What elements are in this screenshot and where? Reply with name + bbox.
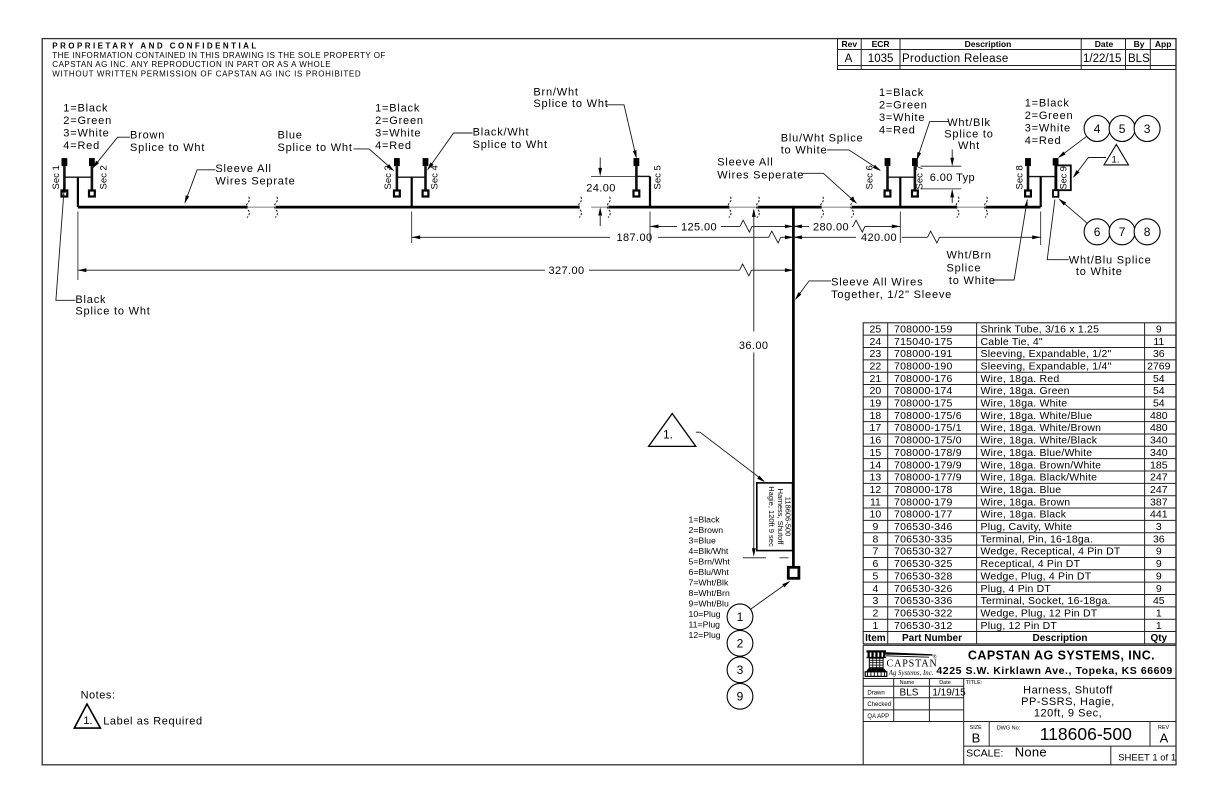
svg-text:9: 9 [737, 690, 744, 704]
svg-text:B: B [972, 730, 981, 745]
svg-text:Terminal, Pin, 16-18ga.: Terminal, Pin, 16-18ga. [981, 533, 1094, 545]
svg-text:2: 2 [872, 607, 878, 619]
svg-text:3=White: 3=White [879, 112, 925, 124]
svg-text:Date: Date [1095, 39, 1114, 49]
svg-text:Wire, 18ga. White/Blue: Wire, 18ga. White/Blue [981, 410, 1093, 422]
svg-text:11: 11 [870, 496, 881, 508]
svg-text:4225 S.W. Kirklawn Ave., Topek: 4225 S.W. Kirklawn Ave., Topeka, KS 6660… [936, 665, 1172, 677]
svg-text:7: 7 [872, 546, 878, 558]
svg-text:9: 9 [872, 521, 878, 533]
svg-text:247: 247 [1150, 484, 1168, 496]
svg-text:708000-178/9: 708000-178/9 [894, 447, 962, 459]
svg-text:708000-159: 708000-159 [894, 323, 953, 335]
svg-text:Sec 1: Sec 1 [51, 165, 62, 189]
svg-text:120ft, 9 Sec,: 120ft, 9 Sec, [1034, 707, 1102, 719]
svg-text:Wedge, Plug, 4 Pin DT: Wedge, Plug, 4 Pin DT [981, 570, 1092, 582]
svg-text:Blu/Wht Splice: Blu/Wht Splice [781, 132, 864, 144]
svg-text:CAPSTAN AG SYSTEMS, INC.: CAPSTAN AG SYSTEMS, INC. [968, 649, 1155, 663]
svg-text:708000-191: 708000-191 [894, 348, 953, 360]
svg-text:3=Blue: 3=Blue [689, 535, 716, 545]
svg-text:Splice to: Splice to [944, 129, 993, 141]
svg-text:2=Green: 2=Green [1025, 110, 1074, 122]
svg-text:9: 9 [1156, 558, 1162, 570]
svg-text:1/19/15: 1/19/15 [932, 687, 966, 698]
svg-text:340: 340 [1150, 447, 1168, 459]
svg-text:SCALE:: SCALE: [966, 748, 1003, 760]
svg-text:Sleeving, Expandable, 1/4": Sleeving, Expandable, 1/4" [981, 360, 1112, 372]
svg-text:Cable Tie, 4": Cable Tie, 4" [981, 336, 1043, 348]
svg-text:9: 9 [1156, 583, 1162, 595]
svg-text:706530-328: 706530-328 [894, 570, 953, 582]
svg-text:36: 36 [1153, 533, 1165, 545]
svg-text:ECR: ECR [872, 39, 890, 49]
svg-text:708000-175/0: 708000-175/0 [894, 435, 962, 447]
svg-text:4: 4 [872, 583, 878, 595]
svg-text:7=Wht/Blk: 7=Wht/Blk [689, 577, 729, 587]
svg-text:Wedge, Receptical, 4 Pin DT: Wedge, Receptical, 4 Pin DT [981, 546, 1121, 558]
svg-text:441: 441 [1150, 509, 1168, 521]
svg-text:CAPSTAN AG INC. ANY REPRODUCTI: CAPSTAN AG INC. ANY REPRODUCTION IN PART… [52, 60, 331, 69]
svg-text:Wht/Blu Splice: Wht/Blu Splice [1069, 255, 1152, 267]
svg-text:10=Plug: 10=Plug [689, 609, 721, 619]
svg-text:Date: Date [939, 680, 951, 686]
svg-text:12: 12 [870, 484, 882, 496]
svg-text:Together, 1/2" Sleeve: Together, 1/2" Sleeve [831, 289, 952, 301]
svg-text:Description: Description [1032, 633, 1087, 644]
svg-text:Wire, 18ga. Brown/White: Wire, 18ga. Brown/White [981, 459, 1102, 471]
svg-text:to White: to White [781, 145, 828, 157]
svg-text:Sec 4: Sec 4 [430, 165, 441, 189]
svg-text:App: App [1155, 39, 1172, 49]
svg-text:708000-176: 708000-176 [894, 373, 953, 385]
svg-text:Sleeve All Wires: Sleeve All Wires [831, 277, 923, 289]
svg-text:2769: 2769 [1147, 360, 1171, 372]
svg-text:20: 20 [870, 385, 882, 397]
svg-text:Sleeve All: Sleeve All [717, 157, 773, 169]
svg-text:23: 23 [870, 348, 882, 360]
svg-text:PP-SSRS, Hagie,: PP-SSRS, Hagie, [1021, 696, 1115, 708]
svg-text:1=Black: 1=Black [689, 514, 721, 524]
svg-text:17: 17 [870, 422, 882, 434]
svg-text:706530-336: 706530-336 [894, 595, 953, 607]
svg-text:1.: 1. [663, 428, 673, 442]
svg-text:1035: 1035 [868, 53, 894, 65]
svg-text:36: 36 [1153, 348, 1165, 360]
svg-text:480: 480 [1150, 410, 1168, 422]
svg-text:4=Red: 4=Red [375, 140, 412, 152]
svg-text:Wires Seperate: Wires Seperate [717, 169, 804, 181]
svg-text:Name: Name [900, 680, 915, 686]
svg-text:1/22/15: 1/22/15 [1083, 53, 1121, 65]
svg-text:708000-179: 708000-179 [894, 496, 953, 508]
svg-text:Brown: Brown [130, 130, 165, 142]
svg-text:1=Black: 1=Black [879, 87, 924, 99]
svg-text:4=Red: 4=Red [1025, 135, 1062, 147]
svg-text:45: 45 [1153, 595, 1165, 607]
svg-text:Brn/Wht: Brn/Wht [533, 87, 578, 99]
svg-text:A: A [1160, 730, 1169, 745]
svg-text:Sec 7: Sec 7 [914, 165, 925, 189]
svg-text:Wht: Wht [958, 140, 980, 152]
svg-text:480: 480 [1150, 422, 1168, 434]
svg-text:Checked: Checked [867, 702, 891, 708]
svg-text:Wht/Blk: Wht/Blk [947, 117, 991, 129]
svg-text:708000-175/1: 708000-175/1 [894, 422, 962, 434]
svg-text:to White: to White [949, 275, 996, 287]
svg-text:Part Number: Part Number [902, 633, 962, 644]
svg-text:706530-322: 706530-322 [894, 607, 953, 619]
svg-text:708000-175/6: 708000-175/6 [894, 410, 962, 422]
svg-text:715040-175: 715040-175 [894, 336, 953, 348]
svg-text:5: 5 [872, 570, 878, 582]
svg-text:16: 16 [870, 435, 882, 447]
svg-text:9: 9 [1156, 323, 1162, 335]
svg-text:Splice to Wht: Splice to Wht [473, 139, 548, 151]
svg-text:Wire, 18ga. Brown: Wire, 18ga. Brown [981, 496, 1071, 508]
svg-text:22: 22 [870, 360, 882, 372]
svg-text:Rev: Rev [842, 39, 858, 49]
svg-text:706530-325: 706530-325 [894, 558, 953, 570]
svg-text:3=White: 3=White [63, 127, 109, 139]
svg-text:Sleeving, Expandable, 1/2": Sleeving, Expandable, 1/2" [981, 348, 1112, 360]
svg-text:Notes:: Notes: [81, 689, 116, 701]
svg-text:2=Green: 2=Green [879, 100, 928, 112]
svg-text:Wire, 18ga. Red: Wire, 18ga. Red [981, 373, 1060, 385]
svg-text:12=Plug: 12=Plug [689, 630, 721, 640]
svg-text:By: By [1134, 39, 1145, 49]
svg-text:PROPRIETARY AND CONFIDENTIAL: PROPRIETARY AND CONFIDENTIAL [52, 42, 258, 51]
svg-text:Black: Black [75, 294, 106, 306]
svg-text:54: 54 [1153, 373, 1165, 385]
svg-text:340: 340 [1150, 435, 1168, 447]
svg-text:3: 3 [1156, 521, 1162, 533]
svg-text:Harness, Shutoff: Harness, Shutoff [1023, 684, 1113, 696]
svg-text:9: 9 [1156, 546, 1162, 558]
svg-text:706530-335: 706530-335 [894, 533, 953, 545]
svg-text:1=Black: 1=Black [63, 103, 108, 115]
svg-text:6: 6 [1094, 225, 1101, 239]
svg-text:THE INFORMATION CONTAINED IN T: THE INFORMATION CONTAINED IN THIS DRAWIN… [52, 51, 385, 60]
svg-text:QA APP: QA APP [867, 714, 889, 720]
svg-text:to White: to White [1076, 266, 1123, 278]
svg-text:1=Black: 1=Black [375, 103, 420, 115]
svg-text:Plug, 4 Pin DT: Plug, 4 Pin DT [981, 583, 1052, 595]
svg-text:9: 9 [1156, 570, 1162, 582]
svg-text:Description: Description [965, 39, 1012, 49]
svg-text:14: 14 [870, 459, 882, 471]
svg-text:Sleeve All: Sleeve All [215, 163, 271, 175]
svg-text:247: 247 [1150, 472, 1168, 484]
svg-text:19: 19 [870, 398, 882, 410]
svg-text:708000-177/9: 708000-177/9 [894, 472, 962, 484]
svg-text:6: 6 [872, 558, 878, 570]
svg-text:125.00: 125.00 [681, 221, 717, 233]
svg-text:Harness, Shutoff: Harness, Shutoff [776, 489, 785, 546]
svg-text:DWG No:: DWG No: [997, 726, 1021, 732]
svg-text:2=Green: 2=Green [375, 115, 424, 127]
svg-text:Wire, 18ga. White/Brown: Wire, 18ga. White/Brown [981, 422, 1102, 434]
svg-text:1=Black: 1=Black [1025, 98, 1070, 110]
svg-text:13: 13 [870, 472, 882, 484]
svg-text:706530-327: 706530-327 [894, 546, 953, 558]
svg-text:Label as Required: Label as Required [103, 716, 202, 728]
svg-text:A: A [845, 53, 853, 65]
svg-text:3: 3 [737, 663, 744, 677]
svg-text:708000-190: 708000-190 [894, 360, 953, 372]
svg-text:Wire, 18ga. Black: Wire, 18ga. Black [981, 509, 1067, 521]
svg-text:Sec 9: Sec 9 [1059, 166, 1069, 189]
svg-text:Wht/Brn: Wht/Brn [947, 250, 992, 262]
svg-text:BLS: BLS [900, 687, 919, 698]
svg-text:387: 387 [1150, 496, 1168, 508]
svg-text:5: 5 [1119, 122, 1126, 136]
svg-text:24: 24 [870, 336, 882, 348]
svg-text:4=Red: 4=Red [879, 124, 916, 136]
svg-text:1: 1 [1156, 620, 1162, 632]
svg-text:4: 4 [1094, 122, 1101, 136]
svg-text:36.00: 36.00 [739, 340, 769, 352]
svg-text:18: 18 [870, 410, 882, 422]
svg-text:708000-179/9: 708000-179/9 [894, 459, 962, 471]
svg-text:420.00: 420.00 [861, 232, 897, 244]
svg-text:706530-346: 706530-346 [894, 521, 953, 533]
svg-text:Splice to Wht: Splice to Wht [130, 142, 205, 154]
svg-text:708000-175: 708000-175 [894, 398, 953, 410]
svg-text:4=Blk/Wht: 4=Blk/Wht [689, 546, 729, 556]
svg-text:54: 54 [1153, 398, 1165, 410]
svg-text:6.00 Typ: 6.00 Typ [930, 172, 975, 184]
svg-text:25: 25 [870, 323, 882, 335]
svg-text:8: 8 [1144, 225, 1151, 239]
svg-text:8: 8 [872, 533, 878, 545]
svg-text:Wire, 18ga. Blue/White: Wire, 18ga. Blue/White [981, 447, 1093, 459]
svg-text:Production Release: Production Release [902, 53, 1009, 65]
svg-text:9=Wht/Blu: 9=Wht/Blu [689, 598, 729, 608]
svg-text:2=Green: 2=Green [63, 115, 112, 127]
svg-text:Splice: Splice [947, 262, 982, 274]
svg-text:TITLE:: TITLE: [966, 680, 983, 686]
svg-text:Hagie, 120ft 9 sec: Hagie, 120ft 9 sec [767, 486, 776, 547]
svg-text:2=Brown: 2=Brown [689, 525, 724, 535]
svg-text:11: 11 [1153, 336, 1164, 348]
svg-text:Plug, Cavity, White: Plug, Cavity, White [981, 521, 1073, 533]
svg-text:Item: Item [865, 633, 886, 644]
svg-text:Sec 5: Sec 5 [652, 165, 663, 189]
svg-text:3=White: 3=White [375, 127, 421, 139]
svg-text:118606-500: 118606-500 [1040, 724, 1132, 744]
svg-text:6=Blu/Wht: 6=Blu/Wht [689, 567, 730, 577]
svg-text:Wire, 18ga. White/Black: Wire, 18ga. White/Black [981, 435, 1098, 447]
svg-text:Wedge, Plug, 12 Pin DT: Wedge, Plug, 12 Pin DT [981, 607, 1098, 619]
svg-text:1.: 1. [83, 715, 92, 727]
svg-text:Receptical, 4 Pin DT: Receptical, 4 Pin DT [981, 558, 1081, 570]
svg-text:706530-312: 706530-312 [894, 620, 953, 632]
svg-text:1: 1 [1156, 607, 1162, 619]
svg-text:WITHOUT WRITTEN PERMISSION OF: WITHOUT WRITTEN PERMISSION OF CAPSTAN AG… [52, 69, 361, 78]
svg-text:708000-177: 708000-177 [894, 509, 953, 521]
svg-text:Splice to Wht: Splice to Wht [278, 142, 353, 154]
svg-text:Splice to Wht: Splice to Wht [75, 305, 150, 317]
svg-text:Wire, 18ga. White: Wire, 18ga. White [981, 398, 1068, 410]
svg-text:708000-178: 708000-178 [894, 484, 953, 496]
svg-text:3: 3 [872, 595, 878, 607]
svg-text:7: 7 [1119, 225, 1126, 239]
svg-text:15: 15 [870, 447, 882, 459]
svg-text:11=Plug: 11=Plug [689, 619, 721, 629]
svg-text:Blue: Blue [278, 130, 303, 142]
svg-text:24.00: 24.00 [586, 182, 616, 194]
svg-text:3: 3 [1144, 122, 1151, 136]
svg-text:SHEET 1 of 1: SHEET 1 of 1 [1118, 752, 1176, 763]
svg-text:2: 2 [737, 637, 744, 651]
svg-text:327.00: 327.00 [548, 265, 584, 277]
svg-text:54: 54 [1153, 385, 1165, 397]
svg-text:5=Brn/Wht: 5=Brn/Wht [689, 556, 731, 566]
svg-text:Wire, 18ga. Green: Wire, 18ga. Green [981, 385, 1070, 397]
svg-text:Splice to Wht: Splice to Wht [533, 98, 608, 110]
svg-text:3=White: 3=White [1025, 122, 1071, 134]
svg-text:1.: 1. [1112, 154, 1120, 165]
svg-text:280.00: 280.00 [813, 221, 849, 233]
svg-text:185: 185 [1150, 459, 1168, 471]
svg-text:Wire, 18ga. Blue: Wire, 18ga. Blue [981, 484, 1062, 496]
svg-text:4=Red: 4=Red [63, 140, 100, 152]
svg-text:Plug, 12 Pin DT: Plug, 12 Pin DT [981, 620, 1058, 632]
svg-text:Terminal, Socket, 16-18ga.: Terminal, Socket, 16-18ga. [981, 595, 1111, 607]
svg-text:Shrink Tube, 3/16 x 1.25: Shrink Tube, 3/16 x 1.25 [981, 323, 1100, 335]
svg-text:8=Wht/Brn: 8=Wht/Brn [689, 588, 730, 598]
svg-text:1: 1 [872, 620, 878, 632]
svg-text:BLS: BLS [1128, 53, 1150, 65]
svg-text:1: 1 [737, 610, 744, 624]
svg-text:Wire, 18ga. Black/White: Wire, 18ga. Black/White [981, 472, 1098, 484]
svg-text:None: None [1015, 744, 1047, 759]
svg-text:Ag Systems, Inc.: Ag Systems, Inc. [888, 670, 934, 677]
svg-text:10: 10 [870, 509, 882, 521]
svg-text:187.00: 187.00 [616, 232, 652, 244]
svg-text:706530-326: 706530-326 [894, 583, 953, 595]
svg-text:21: 21 [870, 373, 882, 385]
svg-text:CAPSTAN: CAPSTAN [887, 659, 938, 670]
svg-text:Wires Seprate: Wires Seprate [215, 176, 295, 188]
svg-text:Drawn: Drawn [867, 691, 884, 697]
svg-text:708000-174: 708000-174 [894, 385, 953, 397]
svg-text:Sec 8: Sec 8 [1014, 165, 1025, 189]
svg-text:Sec 2: Sec 2 [99, 165, 110, 189]
svg-text:Black/Wht: Black/Wht [473, 126, 530, 138]
svg-text:Qty: Qty [1150, 633, 1167, 644]
svg-text:Sec 6: Sec 6 [865, 165, 876, 189]
